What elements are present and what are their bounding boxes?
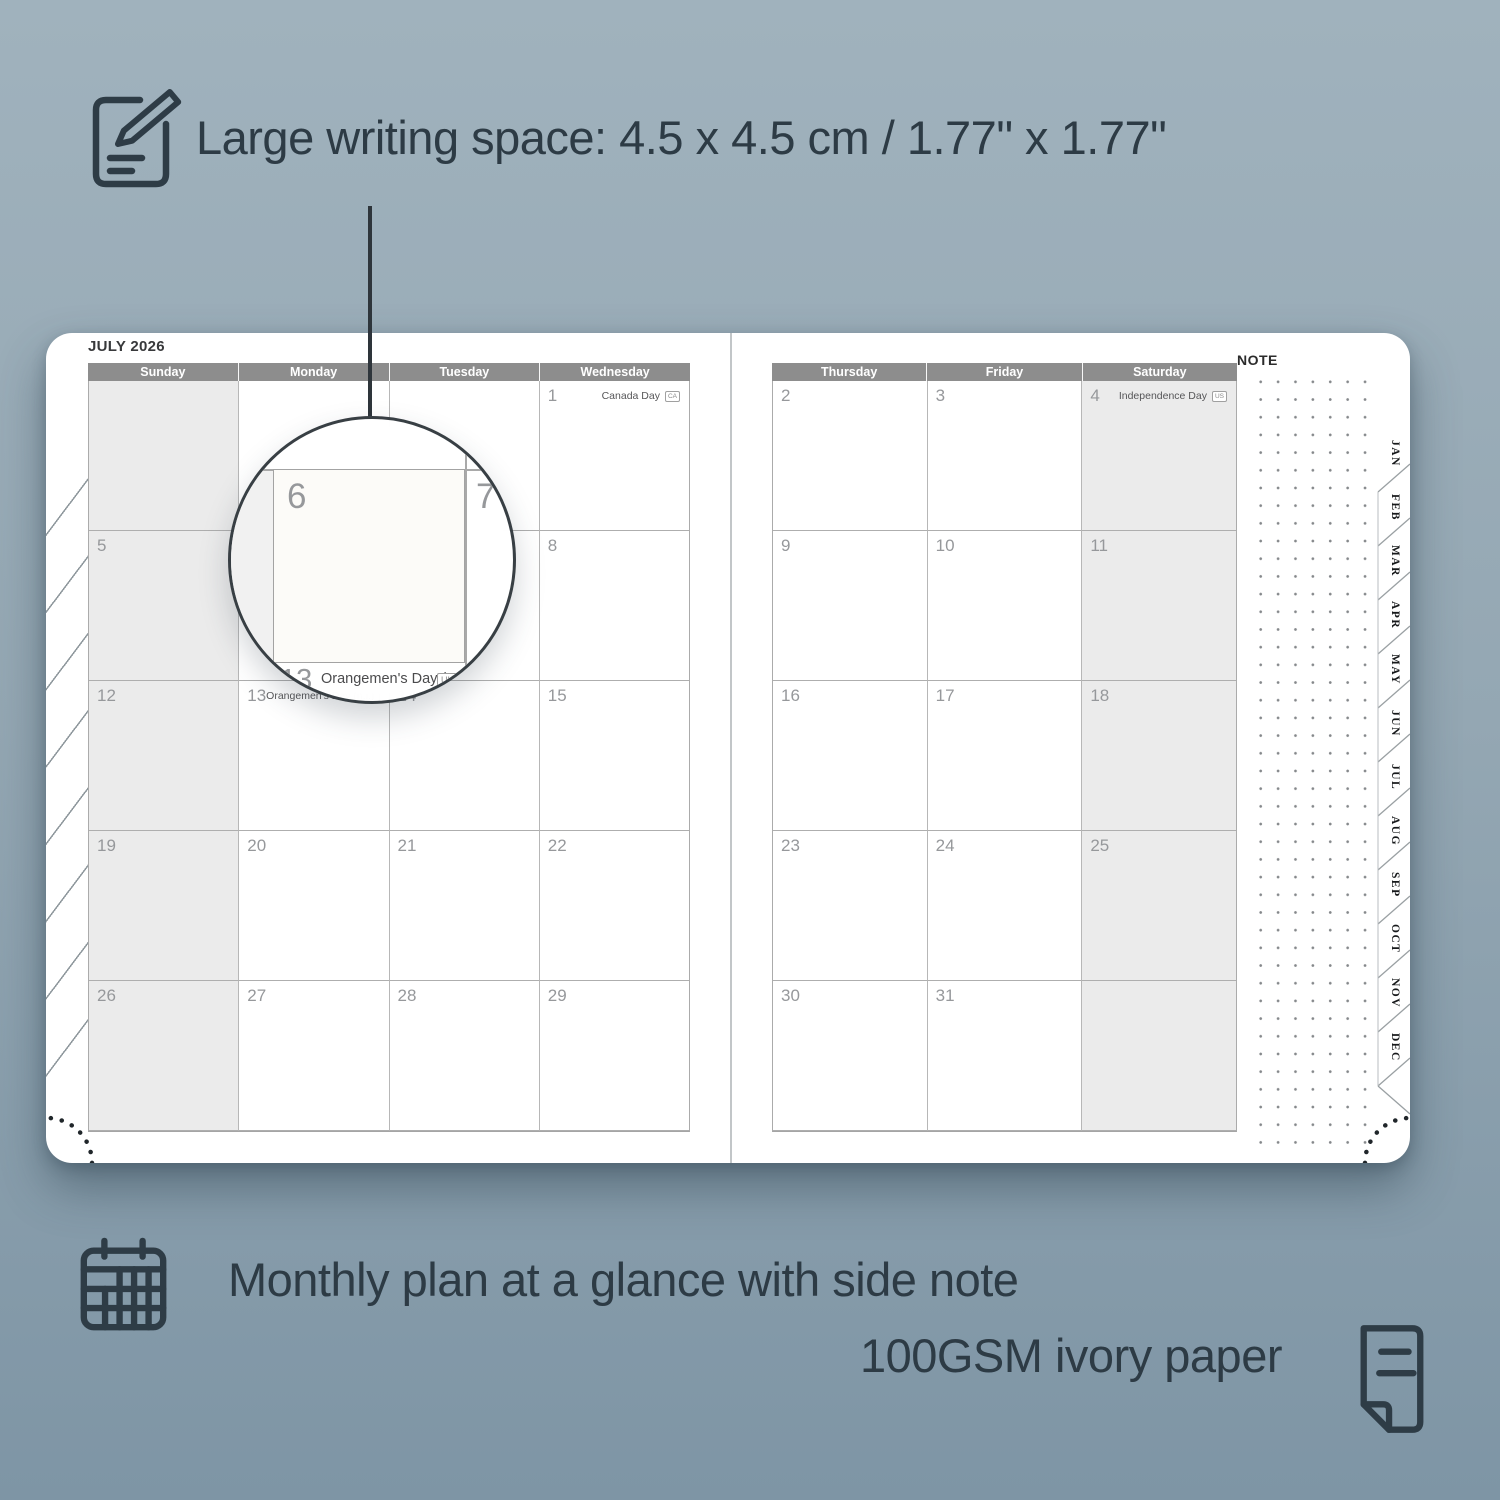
weekday-header: Sunday [88,363,239,381]
calendar-week-row: 234Independence DayUS [772,381,1237,531]
magnified-below-day-number: 13 [280,664,312,697]
calendar-day-cell: 18 [1082,681,1236,831]
magnifier-circle: 6 7 13 Orangemen's Day (n.i.) UK [228,416,516,704]
weekday-header: Saturday [1083,363,1237,381]
calendar-day-cell: 9 [773,531,928,681]
weekday-header: Thursday [772,363,927,381]
calendar-day-cell: 25 [1082,831,1236,981]
holiday-label: Canada DayCA [602,390,680,402]
calendar-day-cell: 20 [239,831,389,981]
holiday-name: Independence Day [1119,390,1207,402]
monthly-plan-label: Monthly plan at a glance with side note [228,1254,1018,1306]
month-tab-aug: AUG [1382,807,1408,855]
calendar-day-cell: 4Independence DayUS [1082,381,1236,531]
day-number: 19 [97,836,116,856]
calendar-week-row: 3031 [772,981,1237,1132]
magnified-day-number: 6 [287,477,306,517]
month-tab-sep: SEP [1382,861,1408,909]
calendar-day-cell: 22 [540,831,689,981]
calendar-day-cell: 17 [928,681,1083,831]
weekday-header: Wednesday [540,363,690,381]
day-number: 18 [1090,686,1109,706]
month-title: JULY 2026 [88,338,165,355]
holiday-name: Canada Day [602,390,660,402]
month-tab-mar: MAR [1382,537,1408,585]
stitch-arc-left [47,1118,92,1163]
day-number: 4 [1090,386,1099,406]
pointer-line [368,206,372,418]
weekday-header-row: SundayMondayTuesdayWednesday [88,363,690,381]
right-calendar-grid: ThursdayFridaySaturday234Independence Da… [772,363,1237,1132]
day-number: 28 [398,986,417,1006]
country-badge: CA [665,391,680,402]
note-label: NOTE [1237,352,1287,368]
magnified-shaded-column [231,470,273,704]
note-dot-grid [1246,369,1378,1151]
calendar-day-cell: 5 [89,531,239,681]
calendar-day-cell [89,381,239,531]
month-tab-nov: NOV [1382,969,1408,1017]
calendar-icon [76,1236,171,1334]
center-fold-line [730,333,732,1163]
weekday-header: Tuesday [390,363,541,381]
day-number: 1 [548,386,557,406]
calendar-week-row: 19202122 [88,831,690,981]
day-number: 8 [548,536,557,556]
day-number: 16 [781,686,800,706]
month-tab-oct: OCT [1382,915,1408,963]
day-number: 23 [781,836,800,856]
day-number: 21 [398,836,417,856]
calendar-day-cell: 2 [773,381,928,531]
calendar-day-cell: 26 [89,981,239,1131]
month-tab-dec: DEC [1382,1023,1408,1071]
magnified-holiday-badge: UK [437,673,458,687]
calendar-day-cell: 15 [540,681,689,831]
calendar-day-cell: 8 [540,531,689,681]
day-number: 27 [247,986,266,1006]
calendar-day-cell: 21 [390,831,540,981]
day-number: 29 [548,986,567,1006]
calendar-day-cell: 11 [1082,531,1236,681]
calendar-day-cell: 29 [540,981,689,1131]
calendar-day-cell: 14 [390,681,540,831]
paper-icon [1352,1320,1430,1438]
magnified-column-line [465,419,467,704]
day-number: 26 [97,986,116,1006]
calendar-day-cell: 1Canada DayCA [540,381,689,531]
magnified-adjacent-day-number: 7 [476,477,495,517]
calendar-day-cell: 24 [928,831,1083,981]
day-number: 17 [936,686,955,706]
day-number: 15 [548,686,567,706]
left-page-edge-hatch [46,459,88,1101]
calendar-day-cell: 12 [89,681,239,831]
calendar-day-cell: 31 [928,981,1083,1131]
planner-spread: JULY 2026 SundayMondayTuesdayWednesday1C… [46,333,1410,1163]
day-number: 20 [247,836,266,856]
day-number: 22 [548,836,567,856]
paper-label: 100GSM ivory paper [860,1330,1282,1382]
day-number: 11 [1090,536,1108,556]
holiday-label: Independence DayUS [1119,390,1227,402]
calendar-day-cell [1082,981,1236,1131]
country-badge: US [1212,391,1227,402]
day-number: 5 [97,536,106,556]
day-number: 10 [936,536,955,556]
day-number: 9 [781,536,790,556]
day-number: 24 [936,836,955,856]
calendar-week-row: 26272829 [88,981,690,1132]
calendar-day-cell: 30 [773,981,928,1131]
calendar-day-cell: 16 [773,681,928,831]
calendar-week-row: 1213Orangemen's Day (n.i.)UK1415 [88,681,690,831]
calendar-day-cell: 27 [239,981,389,1131]
calendar-day-cell: 23 [773,831,928,981]
month-tab-feb: FEB [1382,483,1408,531]
calendar-week-row: 161718 [772,681,1237,831]
month-tab-jul: JUL [1382,753,1408,801]
calendar-day-cell: 10 [928,531,1083,681]
weekday-header: Friday [927,363,1082,381]
notepad-pencil-icon [88,84,188,188]
month-tab-jun: JUN [1382,699,1408,747]
calendar-day-cell: 19 [89,831,239,981]
day-number: 12 [97,686,116,706]
calendar-day-cell: 28 [390,981,540,1131]
weekday-header: Monday [239,363,390,381]
month-tab-apr: APR [1382,591,1408,639]
calendar-week-row: 91011 [772,531,1237,681]
day-number: 3 [936,386,945,406]
day-number: 31 [936,986,955,1006]
day-number: 30 [781,986,800,1006]
day-number: 2 [781,386,790,406]
calendar-day-cell: 3 [928,381,1083,531]
month-tab-may: MAY [1382,645,1408,693]
day-number: 25 [1090,836,1109,856]
calendar-week-row: 232425 [772,831,1237,981]
month-tab-jan: JAN [1382,429,1408,477]
weekday-header-row: ThursdayFridaySaturday [772,363,1237,381]
writing-space-label: Large writing space: 4.5 x 4.5 cm / 1.77… [196,112,1166,164]
